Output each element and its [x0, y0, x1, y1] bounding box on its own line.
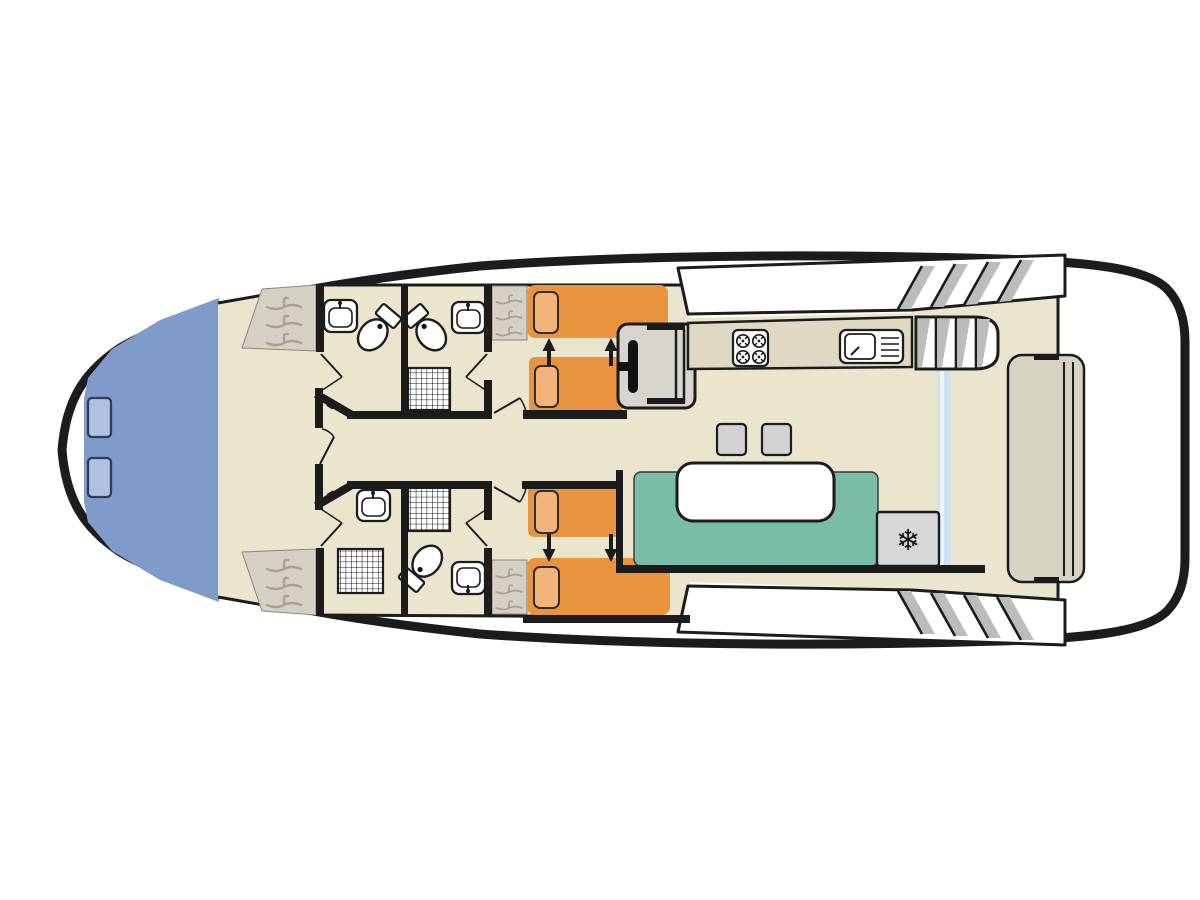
bed-top-pullout [529, 357, 623, 413]
bow-sun-deck [84, 298, 219, 602]
stove-burner-icon [753, 335, 765, 347]
freezer-icon: ❄ [896, 523, 920, 557]
bow-deck-area [84, 298, 219, 602]
aft-stairs [916, 317, 998, 369]
bed-pillow [534, 292, 558, 333]
bow-hatch [88, 458, 111, 497]
patio-door-glass-highlight [940, 371, 944, 567]
bed-pillow [534, 567, 559, 608]
shower [408, 368, 450, 410]
galley-counter [688, 317, 912, 369]
wardrobe-fore-bottom [242, 549, 316, 615]
shower [338, 549, 383, 593]
boat-floor-plan: ❄ [0, 0, 1200, 900]
bathroom-sink [357, 490, 390, 521]
shower [408, 487, 450, 531]
wardrobe-cabin-top [492, 286, 527, 340]
kitchen-sink [840, 330, 903, 363]
bathroom-sink [452, 302, 485, 333]
stove [733, 330, 768, 366]
wardrobe-cabin-bottom [492, 560, 527, 614]
helm-station [617, 324, 695, 408]
steering-wheel-icon [628, 340, 638, 393]
bathroom-sink [452, 562, 485, 594]
stove-burner-icon [737, 351, 749, 363]
bathroom-sink [324, 300, 357, 332]
bar-stool [717, 424, 746, 455]
bed-bottom-pullout [528, 482, 620, 537]
stove-burner-icon [737, 335, 749, 347]
fridge: ❄ [877, 512, 939, 566]
dinette-table [677, 463, 834, 521]
bar-stool [762, 424, 791, 455]
bed-pillow [535, 491, 558, 533]
stove-burner-icon [753, 351, 765, 363]
steering-column-icon [617, 362, 629, 371]
bow-hatch [88, 398, 111, 437]
floor-plan-canvas: ❄ [0, 0, 1200, 900]
bed-pillow [535, 366, 558, 407]
wardrobe-fore-top [242, 285, 316, 351]
aft-bench [1008, 355, 1084, 582]
